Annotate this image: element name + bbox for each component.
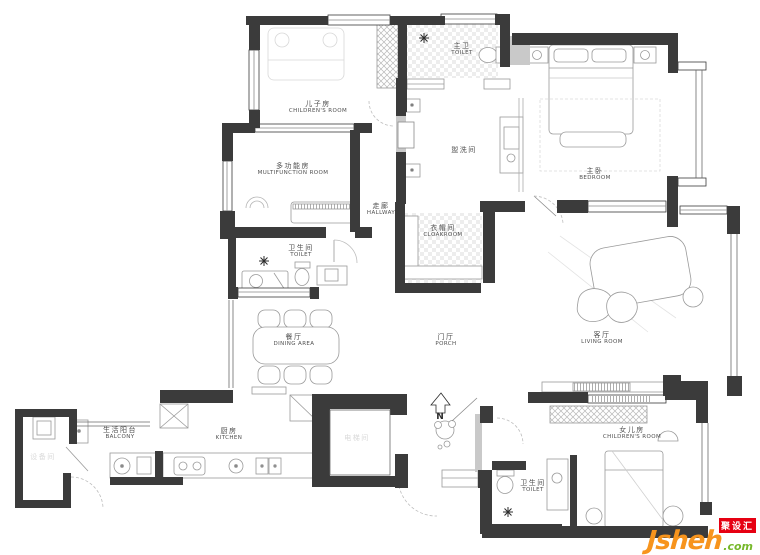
mid-toilet-fixture (295, 262, 310, 286)
sons-bed (268, 28, 344, 80)
daybed (291, 202, 355, 223)
daughter-chair (658, 431, 678, 441)
equipment-room-units (33, 417, 88, 443)
sideboard (252, 387, 286, 394)
watermark: 聚设汇 Jsheh .com (647, 518, 757, 554)
living-room-set (542, 234, 703, 392)
laundry-counter (110, 453, 156, 478)
compass-north-label: N (436, 412, 444, 422)
kitchen-counter (163, 453, 313, 478)
dining-set (253, 310, 339, 384)
ceiling-light-icon (259, 256, 269, 266)
washroom-vanity (500, 117, 523, 173)
floor-plan-canvas: 儿子房 CHILDREN'S ROOM 多功能房 MULTIFUNCTION R… (0, 0, 760, 555)
dining-table (253, 327, 339, 364)
elevator-shaft (330, 410, 390, 475)
ceiling-light-icon (503, 507, 513, 517)
daughter-wardrobe (550, 406, 647, 423)
mid-toilet-vanity (317, 266, 347, 285)
fridge (160, 404, 188, 428)
bottom-toilet-fixture (497, 470, 514, 494)
north-arrow (431, 393, 450, 413)
watermark-cn-badge: 聚设汇 (719, 518, 756, 533)
ceiling-light-icon (419, 33, 429, 43)
master-bed (549, 45, 633, 147)
play-tent (246, 197, 268, 208)
shoe-cabinet (442, 470, 478, 487)
sons-wardrobe (377, 20, 398, 88)
side-table (683, 287, 703, 307)
floor-plan-drawing (0, 0, 760, 555)
daughter-bed (586, 451, 683, 528)
watermark-tld: .com (723, 540, 753, 553)
coffee-table-2 (607, 292, 638, 322)
watermark-brand: Jsheh (646, 526, 723, 555)
shower (547, 459, 568, 510)
master-toilet-fixture (479, 47, 502, 63)
